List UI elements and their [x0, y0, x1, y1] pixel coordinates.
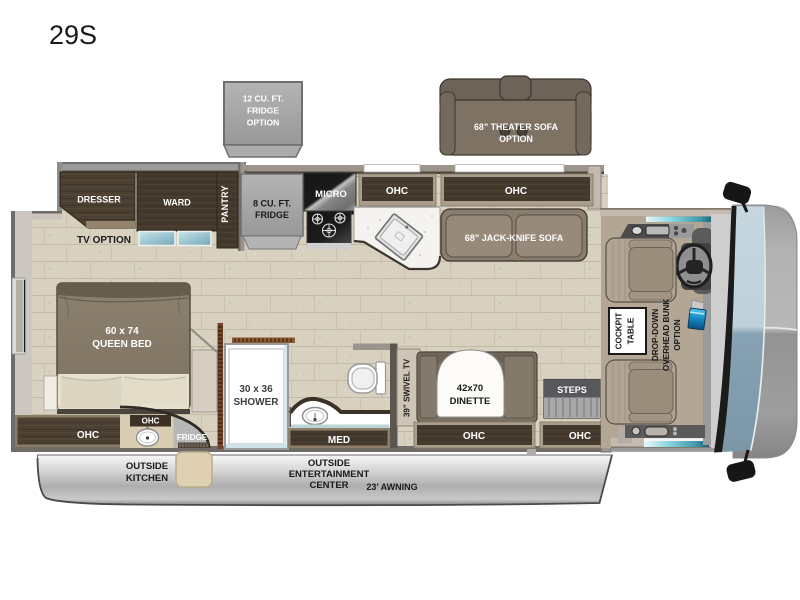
svg-text:CENTER: CENTER: [309, 480, 348, 491]
svg-text:23’ AWNING: 23’ AWNING: [366, 482, 417, 492]
svg-text:29S: 29S: [49, 20, 97, 50]
svg-text:OPTION: OPTION: [247, 118, 280, 128]
svg-text:8 CU. FT.: 8 CU. FT.: [253, 199, 291, 209]
svg-text:39” SWIVEL TV: 39” SWIVEL TV: [403, 358, 412, 417]
svg-text:PANTRY: PANTRY: [220, 185, 230, 223]
svg-text:DROP-DOWN: DROP-DOWN: [651, 309, 660, 361]
svg-text:OUTSIDE: OUTSIDE: [126, 461, 168, 472]
svg-text:COCKPIT: COCKPIT: [615, 313, 624, 350]
svg-text:12 CU. FT.: 12 CU. FT.: [243, 94, 284, 104]
svg-text:FRIDGE: FRIDGE: [247, 106, 279, 116]
svg-text:STEPS: STEPS: [557, 385, 587, 395]
svg-text:DINETTE: DINETTE: [450, 396, 491, 407]
svg-text:FRIDGE: FRIDGE: [177, 433, 208, 442]
svg-text:30 x 36: 30 x 36: [239, 384, 273, 395]
svg-text:60 x 74: 60 x 74: [105, 326, 139, 337]
svg-text:OHC: OHC: [505, 186, 527, 197]
svg-text:OHC: OHC: [463, 431, 485, 442]
svg-text:OHC: OHC: [77, 430, 99, 441]
svg-text:TABLE: TABLE: [627, 317, 636, 344]
svg-text:ENTERTAINMENT: ENTERTAINMENT: [289, 469, 370, 480]
svg-text:MED: MED: [328, 435, 350, 446]
svg-text:MICRO: MICRO: [315, 189, 347, 200]
svg-text:42x70: 42x70: [457, 383, 483, 394]
svg-text:WARD: WARD: [163, 198, 191, 208]
svg-text:68” THEATER SOFA: 68” THEATER SOFA: [474, 122, 559, 132]
svg-text:OUTSIDE: OUTSIDE: [308, 458, 350, 469]
svg-text:OHC: OHC: [142, 417, 160, 426]
svg-text:OVERHEAD BUNK: OVERHEAD BUNK: [662, 299, 671, 371]
svg-text:68” JACK-KNIFE SOFA: 68” JACK-KNIFE SOFA: [465, 233, 564, 243]
svg-text:OPTION: OPTION: [499, 134, 533, 144]
svg-text:KITCHEN: KITCHEN: [126, 473, 168, 484]
svg-text:QUEEN BED: QUEEN BED: [92, 339, 151, 350]
svg-text:SHOWER: SHOWER: [234, 397, 280, 408]
svg-text:OPTION: OPTION: [673, 319, 682, 350]
svg-text:TV OPTION: TV OPTION: [77, 235, 131, 246]
svg-text:DRESSER: DRESSER: [77, 195, 121, 205]
svg-text:OHC: OHC: [569, 431, 591, 442]
svg-text:OHC: OHC: [386, 186, 408, 197]
svg-text:FRIDGE: FRIDGE: [255, 210, 289, 220]
